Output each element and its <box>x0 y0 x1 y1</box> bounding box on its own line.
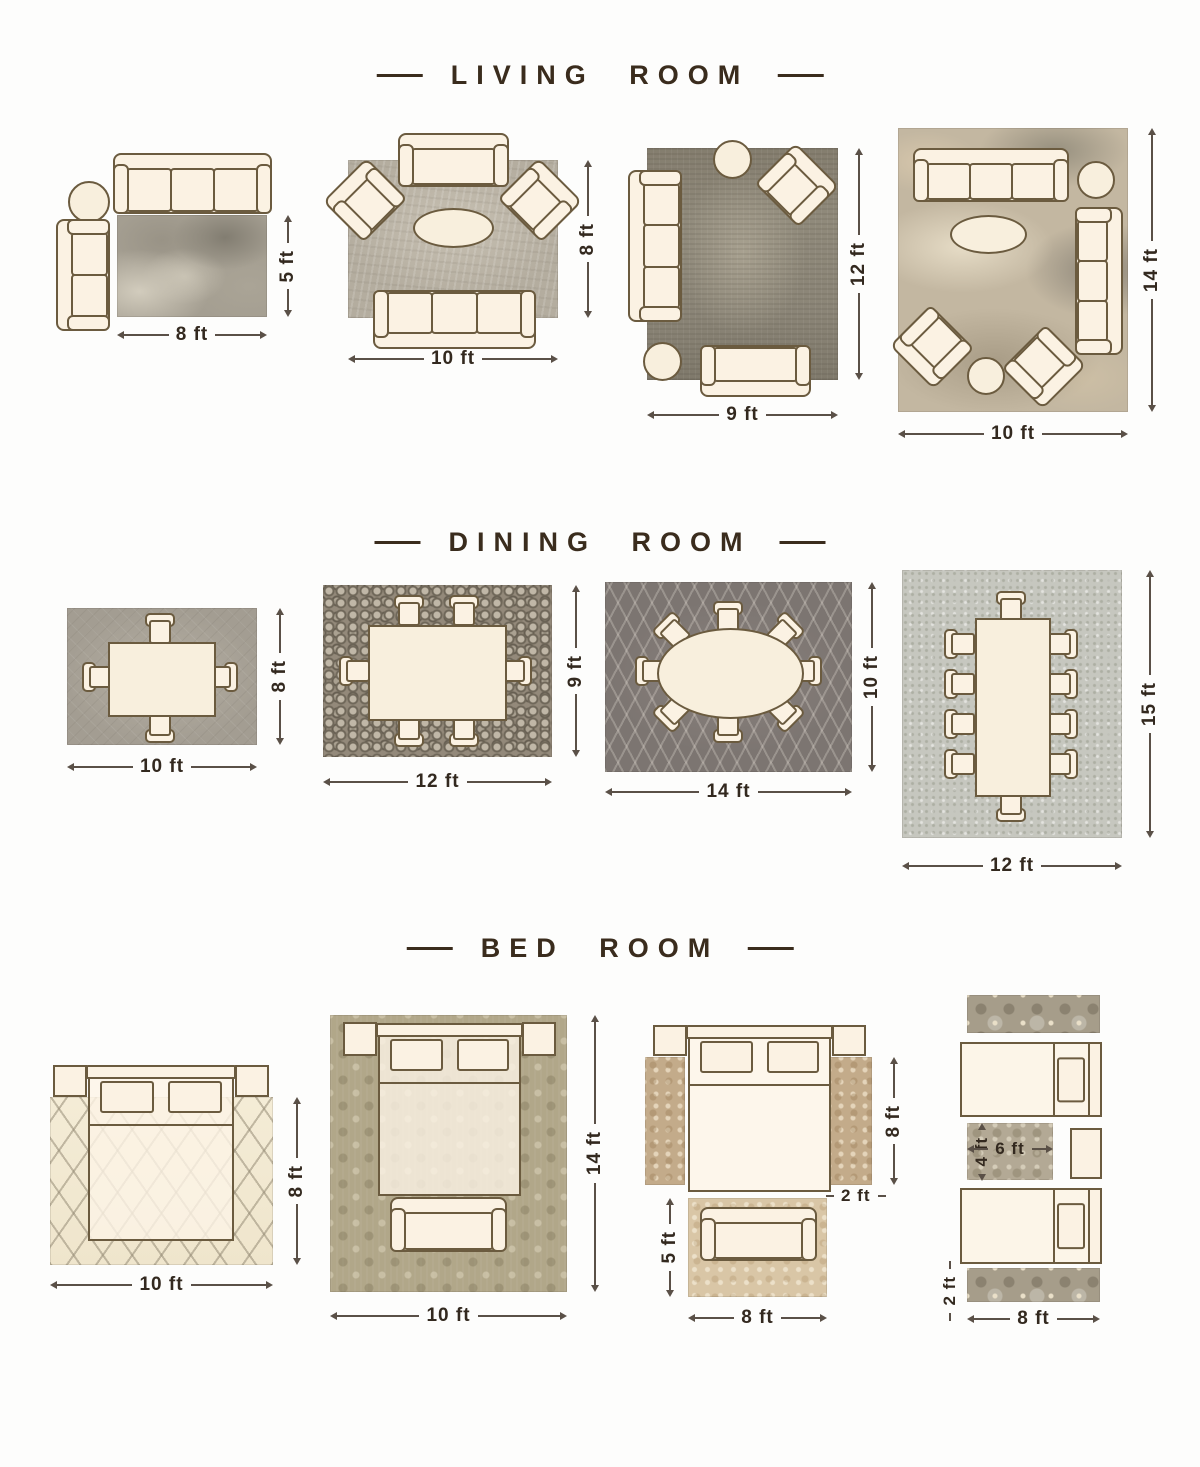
pillow <box>1057 1203 1085 1249</box>
rug-width-dimension: 14 ft <box>605 780 852 804</box>
title-dash <box>375 541 421 544</box>
section-title-text: LIVING ROOM <box>451 60 750 91</box>
dim-label: 10 ft <box>419 1305 477 1327</box>
rug-width-dimension: 12 ft <box>323 770 552 794</box>
nightstand <box>235 1065 269 1097</box>
round-side-table <box>643 342 682 381</box>
dim-label: 10 ft <box>984 423 1042 445</box>
bed-room-layout-4: 4 ft 6 ft 2 ft 8 ft <box>930 985 1170 1335</box>
sofa-three-seat <box>1075 207 1123 355</box>
runner-height-dimension: 8 ft <box>882 1057 906 1185</box>
dining-room-layout-4: 15 ft 12 ft <box>895 562 1165 892</box>
pillow <box>767 1041 820 1073</box>
dining-chair <box>944 709 976 739</box>
dining-chair <box>944 629 976 659</box>
round-side-table <box>967 357 1005 395</box>
rug-height-dimension: 9 ft <box>564 585 588 757</box>
sofa-three-seat <box>373 290 536 349</box>
runner-height-dimension: 2 ft <box>938 1261 962 1309</box>
dim-label: 8 ft <box>883 1098 905 1145</box>
round-side-table <box>1077 161 1115 199</box>
rug-height-dimension: 10 ft <box>860 582 884 772</box>
title-dash <box>780 541 826 544</box>
rug-width-dimension: 10 ft <box>348 347 558 371</box>
dining-chair <box>449 595 479 627</box>
bed-room-layout-3: 8 ft 2 ft 5 ft 8 ft <box>640 1018 905 1323</box>
section-title-text: DINING ROOM <box>449 527 752 558</box>
dim-label: 14 ft <box>699 781 757 803</box>
living-room-layout-1: 5 ft 8 ft <box>50 145 350 360</box>
dining-table <box>368 625 507 721</box>
rug-width-dimension: 10 ft <box>67 755 257 779</box>
dim-label: 12 ft <box>848 235 870 293</box>
section-title-text: BED ROOM <box>481 933 720 964</box>
nightstand <box>522 1022 556 1056</box>
dim-label: 15 ft <box>1139 675 1161 733</box>
pillow <box>168 1081 222 1113</box>
dim-label: 14 ft <box>584 1124 606 1182</box>
title-dash <box>377 74 423 77</box>
runner-rug <box>645 1057 685 1185</box>
runner-rug <box>830 1057 872 1185</box>
loveseat <box>398 133 509 187</box>
rug-height-dimension: 8 ft <box>576 160 600 318</box>
rug-width-dimension: 10 ft <box>898 422 1128 446</box>
dim-label: 2 ft <box>940 1269 960 1313</box>
rug-width-dimension: 10 ft <box>330 1304 567 1328</box>
rug-height-dimension: 8 ft <box>268 608 292 745</box>
rug-width-dimension: 8 ft <box>117 323 267 347</box>
dim-label: 9 ft <box>719 404 766 426</box>
rug-height-dimension: 12 ft <box>847 148 871 380</box>
bed <box>378 1023 521 1196</box>
nightstand <box>832 1025 866 1056</box>
rug-height-dimension: 14 ft <box>583 1015 607 1292</box>
oval-dining-table <box>657 628 804 719</box>
runner-rug <box>967 1268 1100 1302</box>
chaise-sofa <box>56 219 110 331</box>
bed-room-layout-2: 14 ft 10 ft <box>322 1008 612 1343</box>
dining-room-layout-1: 8 ft 10 ft <box>60 595 305 785</box>
dim-label: 5 ft <box>277 243 299 290</box>
living-room-layout-4: 14 ft 10 ft <box>890 120 1175 450</box>
dim-label: 8 ft <box>577 216 599 263</box>
dim-label: 12 ft <box>983 855 1041 877</box>
accent-rug-width-dimension: 6 ft <box>967 1137 1053 1161</box>
twin-bed <box>960 1042 1102 1117</box>
dining-table <box>975 618 1051 797</box>
nightstand <box>343 1022 377 1056</box>
dim-label: 5 ft <box>659 1224 681 1271</box>
dim-label: 8 ft <box>734 1307 781 1329</box>
bed <box>688 1025 831 1192</box>
nightstand <box>653 1025 687 1056</box>
nightstand <box>1070 1128 1102 1179</box>
pillow <box>100 1081 154 1113</box>
accent-rug-width-dimension: 8 ft <box>688 1306 827 1330</box>
bench <box>390 1197 507 1252</box>
rug-size-guide: LIVING ROOM 5 ft 8 ft <box>0 0 1200 1467</box>
section-title-dining-room: DINING ROOM <box>375 527 826 558</box>
dim-label: 10 ft <box>132 1274 190 1296</box>
dim-label: 6 ft <box>988 1139 1032 1159</box>
bed <box>88 1065 234 1241</box>
dim-label: 12 ft <box>408 771 466 793</box>
round-side-table <box>713 140 752 179</box>
sofa-three-seat <box>628 170 682 322</box>
oval-coffee-table <box>950 215 1027 254</box>
bed-room-layout-1: 8 ft 10 ft <box>42 1058 312 1298</box>
title-dash <box>747 947 793 950</box>
rug-height-dimension: 15 ft <box>1138 570 1162 838</box>
title-dash <box>777 74 823 77</box>
sofa-three-seat <box>913 148 1069 202</box>
runner-rug <box>967 995 1100 1033</box>
rug-width-dimension: 10 ft <box>50 1273 273 1297</box>
dining-chair <box>339 656 371 686</box>
dining-room-layout-3: 10 ft 14 ft <box>598 575 878 810</box>
pillow <box>390 1039 443 1071</box>
rug-width-dimension: 9 ft <box>647 403 838 427</box>
dining-chair <box>944 749 976 779</box>
dim-label: 8 ft <box>269 653 291 700</box>
dining-room-layout-2: 9 ft 12 ft <box>318 580 583 800</box>
dim-label: 2 ft <box>834 1186 878 1206</box>
twin-bed <box>960 1188 1102 1264</box>
title-dash <box>407 947 453 950</box>
living-room-layout-2: 8 ft 10 ft <box>330 125 615 375</box>
dim-label: 9 ft <box>565 648 587 695</box>
loveseat <box>700 345 811 397</box>
dining-chair <box>944 669 976 699</box>
rug <box>117 215 267 317</box>
nightstand <box>53 1065 87 1097</box>
dining-chair <box>145 613 175 645</box>
section-title-living-room: LIVING ROOM <box>377 60 824 91</box>
dim-label: 8 ft <box>286 1158 308 1205</box>
rug-width-dimension: 12 ft <box>902 854 1122 878</box>
dim-label: 10 ft <box>424 348 482 370</box>
dim-label: 10 ft <box>861 648 883 706</box>
pillow <box>457 1039 510 1071</box>
oval-coffee-table <box>413 208 494 248</box>
rug-height-dimension: 5 ft <box>276 215 300 317</box>
pillow <box>700 1041 753 1073</box>
rug-height-dimension: 14 ft <box>1140 128 1164 412</box>
bench <box>700 1207 817 1261</box>
round-side-table <box>68 181 110 223</box>
runner-width-dimension: 8 ft <box>967 1307 1100 1331</box>
sofa-three-seat <box>113 153 272 214</box>
dim-label: 14 ft <box>1141 241 1163 299</box>
living-room-layout-3: 12 ft 9 ft <box>625 135 875 430</box>
accent-rug-height-dimension: 5 ft <box>658 1198 682 1297</box>
dim-label: 10 ft <box>133 756 191 778</box>
section-title-bed-room: BED ROOM <box>407 933 794 964</box>
rug-height-dimension: 8 ft <box>285 1097 309 1265</box>
pillow <box>1057 1057 1085 1102</box>
runner-width-dimension: 2 ft <box>826 1184 888 1208</box>
dining-table <box>108 642 216 717</box>
dining-chair <box>394 595 424 627</box>
dim-label: 8 ft <box>1010 1308 1057 1330</box>
dim-label: 8 ft <box>169 324 216 346</box>
